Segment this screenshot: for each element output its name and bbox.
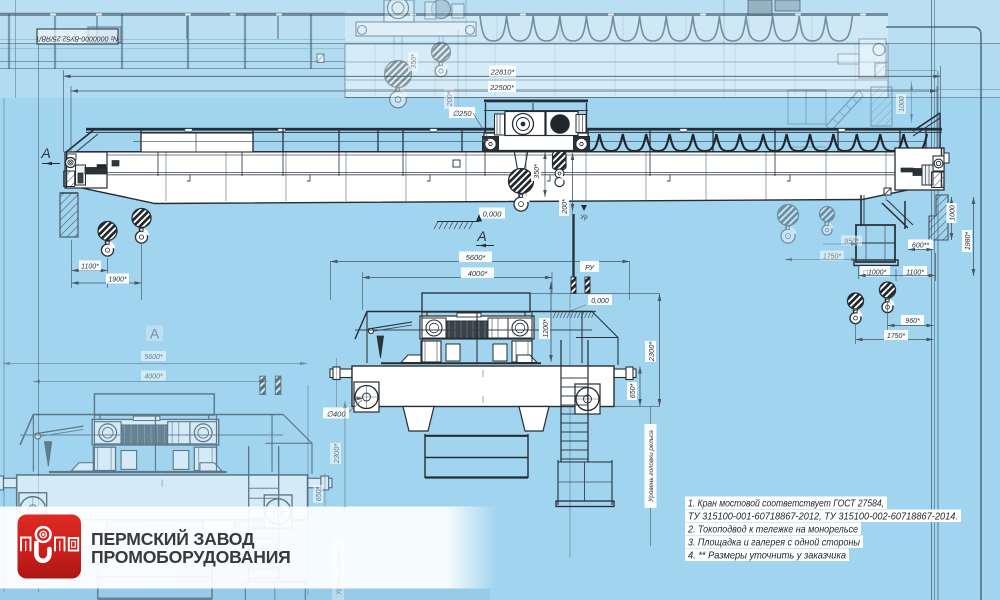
svg-text:РУ: РУ <box>585 265 595 272</box>
svg-text:1200*: 1200* <box>543 319 550 338</box>
svg-text:ПРОМОБОРУДОВАНИЯ: ПРОМОБОРУДОВАНИЯ <box>91 547 291 567</box>
svg-text:2. Токоподвод к тележке на мон: 2. Токоподвод к тележке на монорельсе <box>687 524 858 536</box>
svg-text:ТУ 315100-001-60718867-2012,: ТУ 315100-001-60718867-2012, ТУ 315100-0… <box>688 511 958 523</box>
svg-text:350*: 350* <box>534 164 541 179</box>
svg-text:A: A <box>40 145 50 161</box>
svg-text:1. Кран мостовой соответствует: 1. Кран мостовой соответствует ГОСТ 2758… <box>688 498 884 510</box>
svg-text:650*: 650* <box>316 487 323 502</box>
svg-text:4000*: 4000* <box>468 269 489 278</box>
svg-text:A: A <box>150 326 160 342</box>
svg-text:5600*: 5600* <box>144 354 163 361</box>
svg-text:∅400: ∅400 <box>326 409 346 418</box>
svg-text:1980*: 1980* <box>965 232 972 251</box>
svg-text:1750*: 1750* <box>887 333 906 340</box>
svg-text:Ур: Ур <box>579 215 588 221</box>
svg-text:4000*: 4000* <box>144 373 163 380</box>
svg-text:5600*: 5600* <box>466 253 487 262</box>
svg-text:2300*: 2300* <box>332 443 341 465</box>
svg-text:1100*: 1100* <box>81 263 99 270</box>
svg-text:22500*: 22500* <box>489 83 515 92</box>
svg-text:3. Площадка и галерея с одной: 3. Площадка и галерея с одной стороны <box>688 537 860 549</box>
svg-text:4. ** Размеры уточнить у зака: 4. ** Размеры уточнить у заказчика <box>688 550 846 562</box>
svg-text:ПЕРМСКИЙ ЗАВОД: ПЕРМСКИЙ ЗАВОД <box>91 528 255 549</box>
svg-text:960*: 960* <box>905 318 920 325</box>
svg-text:0,000: 0,000 <box>591 298 609 305</box>
svg-text:650*: 650* <box>630 384 637 399</box>
svg-text:350*: 350* <box>411 54 418 69</box>
svg-text:∅250: ∅250 <box>452 109 472 118</box>
svg-text:22810*: 22810* <box>490 67 516 76</box>
svg-text:200*: 200* <box>447 92 454 108</box>
svg-text:1900*: 1900* <box>108 276 127 283</box>
svg-text:2300*: 2300* <box>647 341 656 363</box>
svg-text:A: A <box>476 228 486 244</box>
svg-text:0,000: 0,000 <box>483 209 503 218</box>
svg-text:200*: 200* <box>562 199 569 215</box>
svg-text:№ 0000000-ВУ52.25/ЯВЛ: № 0000000-ВУ52.25/ЯВЛ <box>37 35 119 42</box>
svg-text:1000: 1000 <box>949 205 956 221</box>
svg-text:Уровень головки рельса: Уровень головки рельса <box>648 430 655 503</box>
svg-text:1000: 1000 <box>899 96 906 112</box>
